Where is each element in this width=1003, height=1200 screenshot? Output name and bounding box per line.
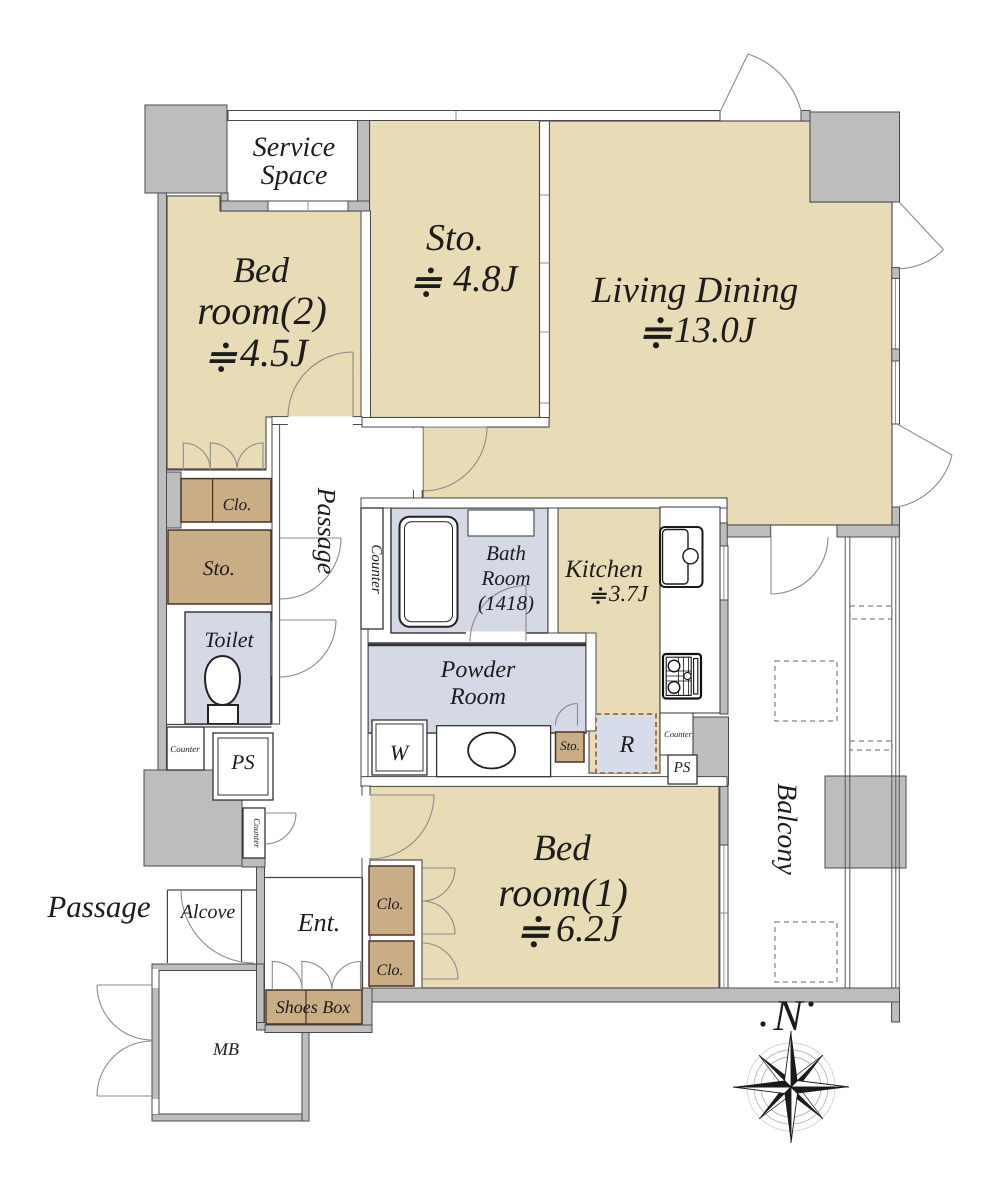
svg-text:Living Dining: Living Dining [591,270,799,311]
svg-text:R: R [619,732,635,758]
svg-text:Alcove: Alcove [179,901,236,923]
svg-text:Clo.: Clo. [376,962,403,979]
svg-text:Clo.: Clo. [376,896,403,913]
svg-text:Kitchen: Kitchen [564,556,643,583]
svg-text:W: W [390,740,410,765]
svg-text:Bath: Bath [486,541,526,565]
svg-text:Sto.: Sto. [203,556,235,580]
svg-text:Room: Room [449,684,506,710]
svg-text:4.5J: 4.5J [240,330,310,375]
svg-text:PS: PS [230,750,255,774]
svg-text:Sto.: Sto. [560,738,580,753]
svg-text:Clo.: Clo. [223,495,252,514]
svg-text:Room: Room [481,566,531,590]
svg-text:Counter: Counter [368,544,384,593]
svg-text:Sto.: Sto. [426,217,484,259]
svg-text:MB: MB [212,1039,239,1059]
svg-text:4.8J: 4.8J [453,258,520,300]
svg-text:6.2J: 6.2J [556,908,623,950]
svg-text:Service: Service [253,132,335,163]
svg-text:Space: Space [261,160,328,191]
svg-text:Bed: Bed [533,828,591,869]
svg-text:Counter: Counter [252,818,262,848]
svg-text:Counter: Counter [170,744,200,754]
svg-text:Toilet: Toilet [204,627,254,652]
svg-text:Powder: Powder [440,657,516,683]
svg-text:(1418): (1418) [478,591,534,615]
svg-text:Passage: Passage [46,889,151,924]
svg-text:Counter: Counter [664,729,693,739]
svg-text:Shoes Box: Shoes Box [276,997,350,1017]
svg-text:13.0J: 13.0J [674,310,757,351]
svg-text:N: N [772,991,805,1040]
svg-text:Passage: Passage [312,487,341,575]
svg-text:3.7J: 3.7J [608,581,650,606]
svg-text:Balcony: Balcony [771,783,802,875]
svg-text:Ent.: Ent. [297,908,341,937]
svg-text:Bed: Bed [233,250,290,290]
svg-text:room(2): room(2) [197,288,327,333]
svg-text:PS: PS [673,760,691,776]
